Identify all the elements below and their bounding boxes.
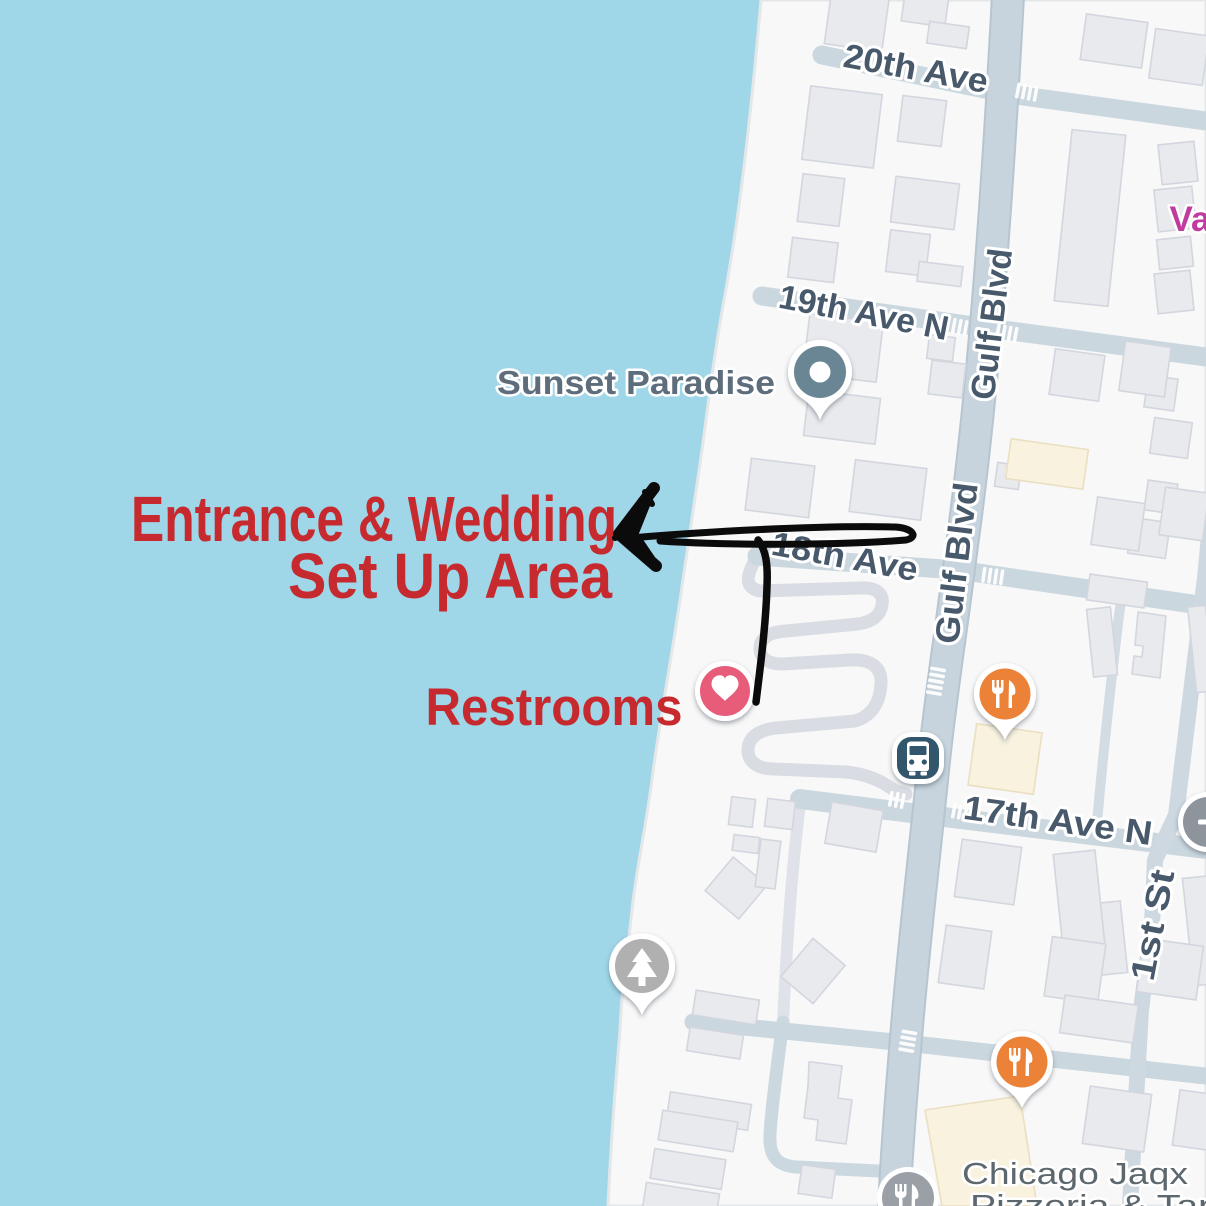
svg-text:Va: Va	[1170, 200, 1206, 239]
svg-text:Chicago Jaqx: Chicago Jaqx	[962, 1156, 1189, 1191]
svg-text:Sunset Paradise: Sunset Paradise	[497, 364, 775, 401]
svg-text:Set Up Area: Set Up Area	[288, 540, 612, 612]
svg-text:Pizzeria & Tap: Pizzeria & Tap	[970, 1188, 1206, 1206]
svg-text:Restrooms: Restrooms	[426, 678, 683, 737]
